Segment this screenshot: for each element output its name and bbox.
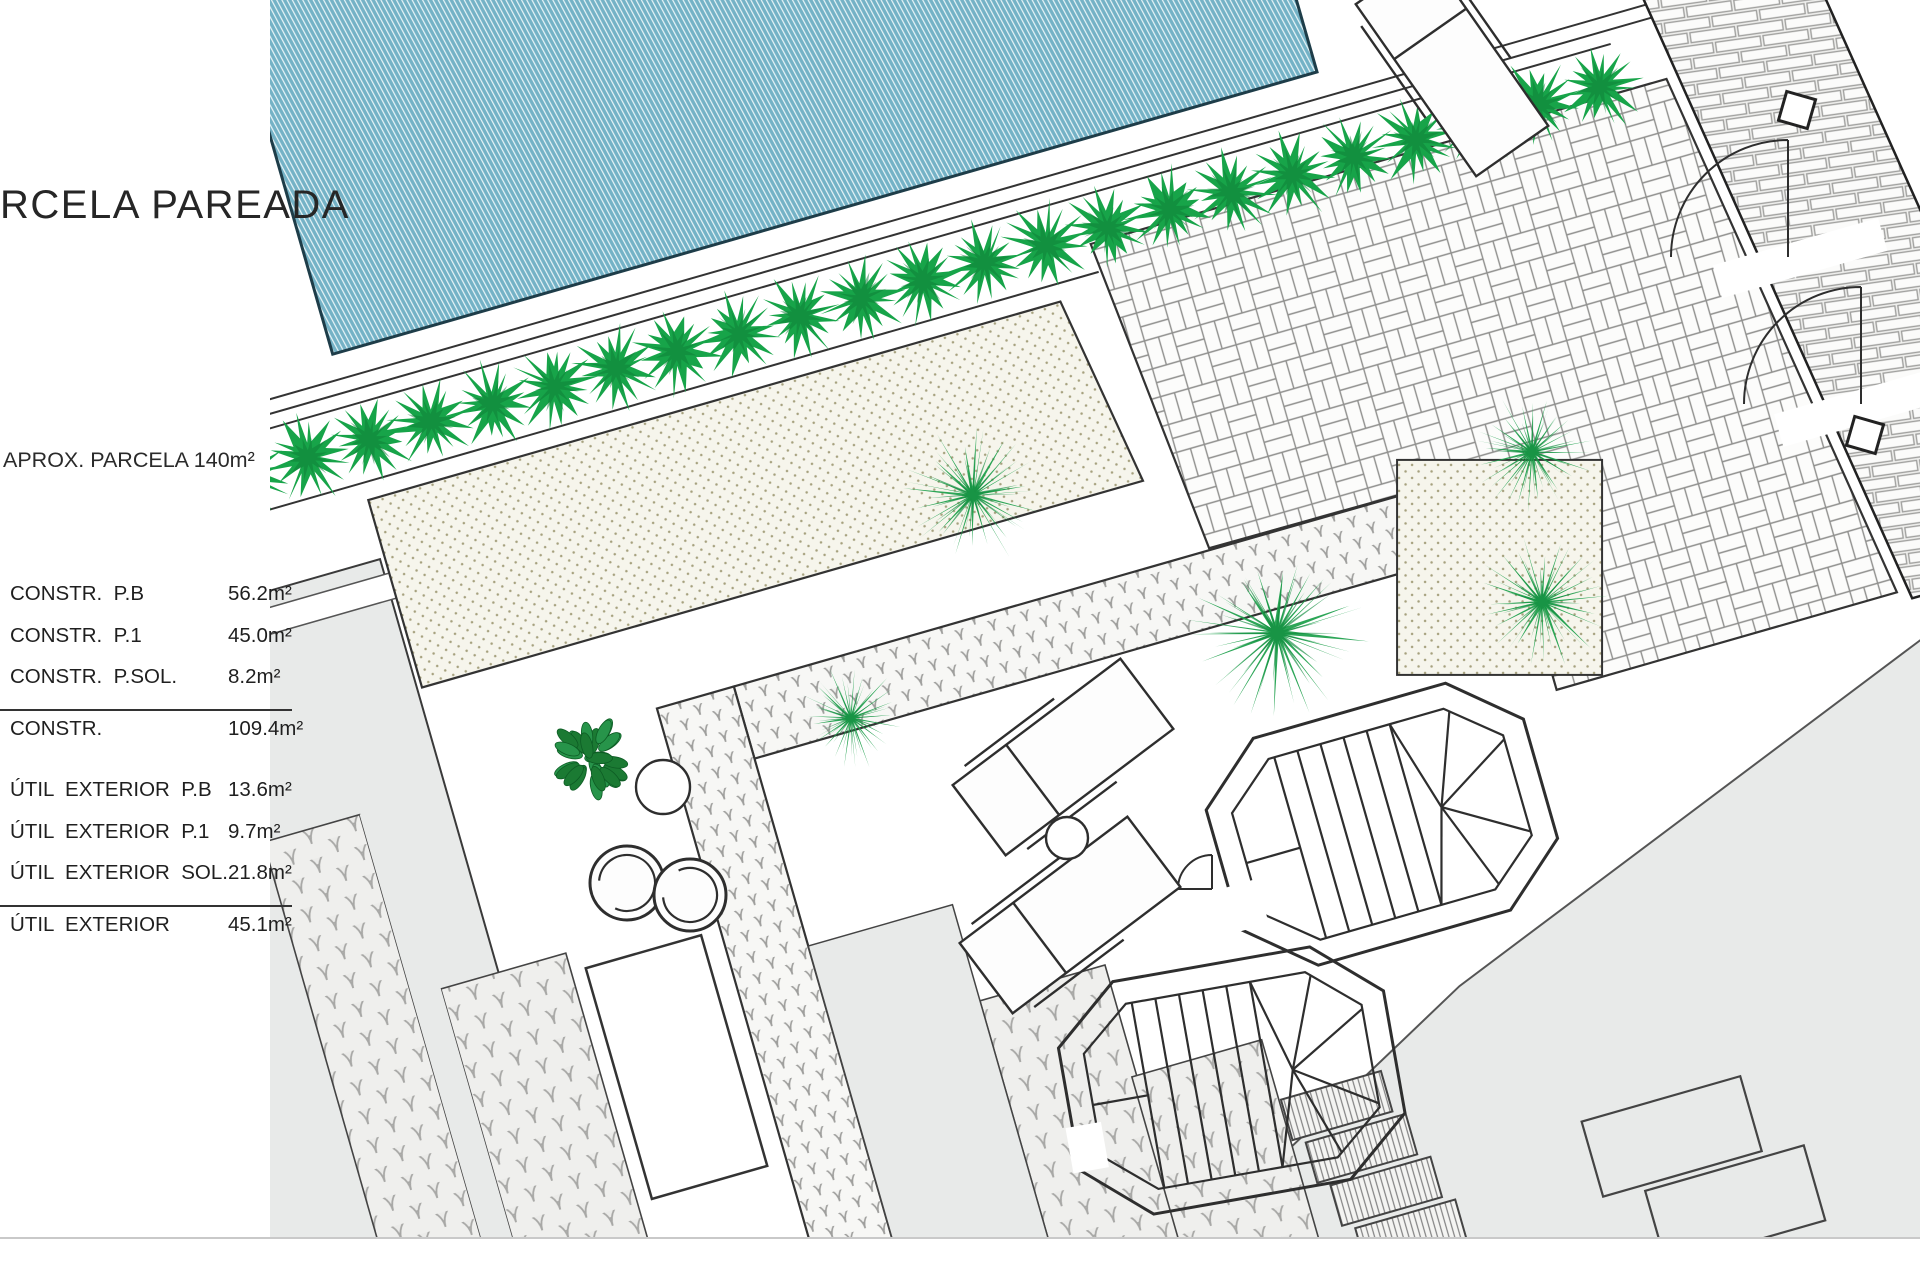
sun-lounger: [1349, 0, 1555, 181]
plan-title: RCELA PAREADA: [0, 183, 350, 228]
table-row: ÚTIL EXTERIOR P.B 13.6m²: [0, 778, 300, 820]
door-arc: [1178, 855, 1212, 889]
row-label: CONSTR. P.SOL.: [10, 665, 177, 689]
row-label: CONSTR.: [10, 717, 102, 741]
row-value: 109.4m²: [228, 717, 303, 741]
palm-plant-icon: [1475, 400, 1592, 514]
row-label: ÚTIL EXTERIOR P.1: [10, 820, 209, 844]
site-plan-overlay-layer: [270, 0, 1920, 1237]
row-value: 56.2m²: [228, 582, 292, 606]
round-table: [636, 760, 690, 814]
row-value: 8.2m²: [228, 665, 280, 689]
site-plan: [270, 0, 1920, 1237]
door-jambs: [1778, 91, 1883, 453]
exterior-area-table: ÚTIL EXTERIOR P.B 13.6m² ÚTIL EXTERIOR P…: [0, 778, 300, 954]
row-label: CONSTR. P.1: [10, 624, 142, 648]
palm-plant-icon: [802, 668, 901, 768]
row-label: CONSTR. P.B: [10, 582, 144, 606]
round-chair: [654, 859, 726, 931]
door-arc: [1744, 287, 1861, 404]
table-total-row: CONSTR. 109.4m²: [0, 717, 300, 759]
door-arc: [1671, 140, 1788, 257]
row-label: ÚTIL EXTERIOR: [10, 913, 170, 937]
table-row: ÚTIL EXTERIOR P.1 9.7m²: [0, 820, 300, 862]
table-row: CONSTR. P.SOL. 8.2m²: [0, 665, 300, 707]
table-separator: [0, 709, 292, 711]
palm-plant-icon: [903, 427, 1039, 557]
door-swings: [1178, 140, 1861, 1237]
furniture: [590, 0, 1555, 1020]
row-value: 45.0m²: [228, 624, 292, 648]
palm-plant-icon: [1186, 564, 1369, 716]
table-row: CONSTR. P.1 45.0m²: [0, 624, 300, 666]
round-chair: [590, 846, 664, 920]
palm-plant-icon: [1484, 538, 1610, 664]
table-row: ÚTIL EXTERIOR SOL. 21.8m²: [0, 861, 300, 903]
parcel-area-note: APROX. PARCELA 140m²: [3, 448, 255, 473]
leafy-shrub-icon: [552, 716, 629, 801]
round-table: [1046, 817, 1088, 859]
row-value: 21.8m²: [228, 861, 292, 885]
constructed-area-table: CONSTR. P.B 56.2m² CONSTR. P.1 45.0m² CO…: [0, 582, 300, 758]
row-value: 9.7m²: [228, 820, 280, 844]
table-row: CONSTR. P.B 56.2m²: [0, 582, 300, 624]
sheet-bottom-edge: [0, 1237, 1920, 1239]
row-label: ÚTIL EXTERIOR P.B: [10, 778, 212, 802]
row-value: 13.6m²: [228, 778, 292, 802]
legend-panel: RCELA PAREADA APROX. PARCELA 140m² CONST…: [0, 0, 270, 1237]
table-separator: [0, 905, 292, 907]
row-value: 45.1m²: [228, 913, 292, 937]
table-total-row: ÚTIL EXTERIOR 45.1m²: [0, 913, 300, 955]
row-label: ÚTIL EXTERIOR SOL.: [10, 861, 228, 885]
